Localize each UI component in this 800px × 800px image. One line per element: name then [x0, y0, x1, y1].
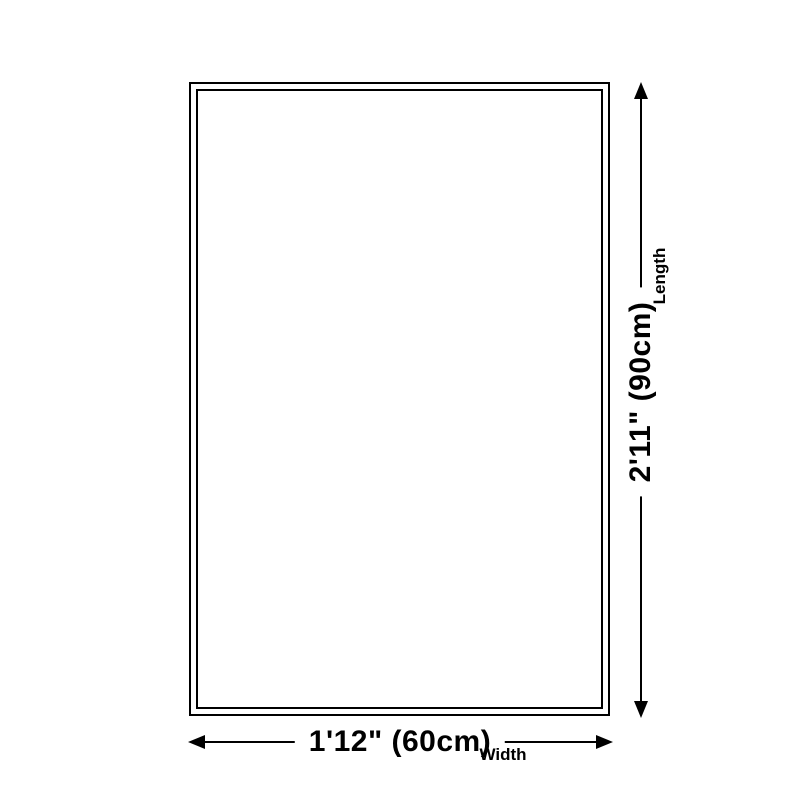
length-dimension-arrow: 2'11" (90cm) Length	[634, 82, 648, 718]
arrow-right-icon	[596, 735, 613, 749]
dimension-diagram: 2'11" (90cm) Length 1'12" (60cm) Width	[0, 0, 800, 800]
product-rectangle-outer	[189, 82, 610, 716]
width-value: 1'12" (60cm)	[295, 725, 505, 759]
length-label: Length	[650, 248, 670, 305]
width-label: Width	[479, 745, 526, 765]
length-value: 2'11" (90cm)	[624, 288, 658, 497]
arrow-down-icon	[634, 701, 648, 718]
width-dimension-arrow: 1'12" (60cm) Width	[188, 735, 613, 749]
product-rectangle-inner	[196, 89, 603, 709]
